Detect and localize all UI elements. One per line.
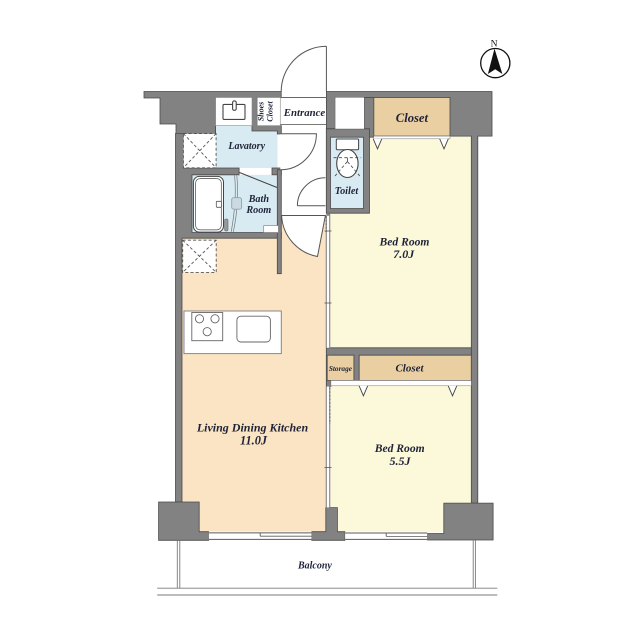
svg-text:Closet: Closet — [396, 111, 429, 125]
svg-text:7.0J: 7.0J — [393, 247, 415, 261]
svg-text:Bath: Bath — [248, 194, 270, 205]
svg-text:Room: Room — [245, 205, 271, 216]
svg-text:Entrance: Entrance — [283, 107, 326, 119]
svg-text:Lavatory: Lavatory — [227, 141, 265, 152]
svg-text:Living Dining Kitchen: Living Dining Kitchen — [196, 420, 309, 434]
svg-text:11.0J: 11.0J — [240, 434, 268, 448]
svg-text:5.5J: 5.5J — [390, 454, 412, 468]
svg-text:Balcony: Balcony — [297, 561, 332, 572]
svg-text:Toilet: Toilet — [335, 186, 360, 197]
svg-text:Closet: Closet — [395, 363, 424, 375]
svg-text:Closet: Closet — [266, 101, 275, 122]
svg-text:Storage: Storage — [329, 364, 353, 373]
svg-text:N: N — [491, 39, 498, 49]
svg-text:Shoes: Shoes — [257, 102, 266, 122]
